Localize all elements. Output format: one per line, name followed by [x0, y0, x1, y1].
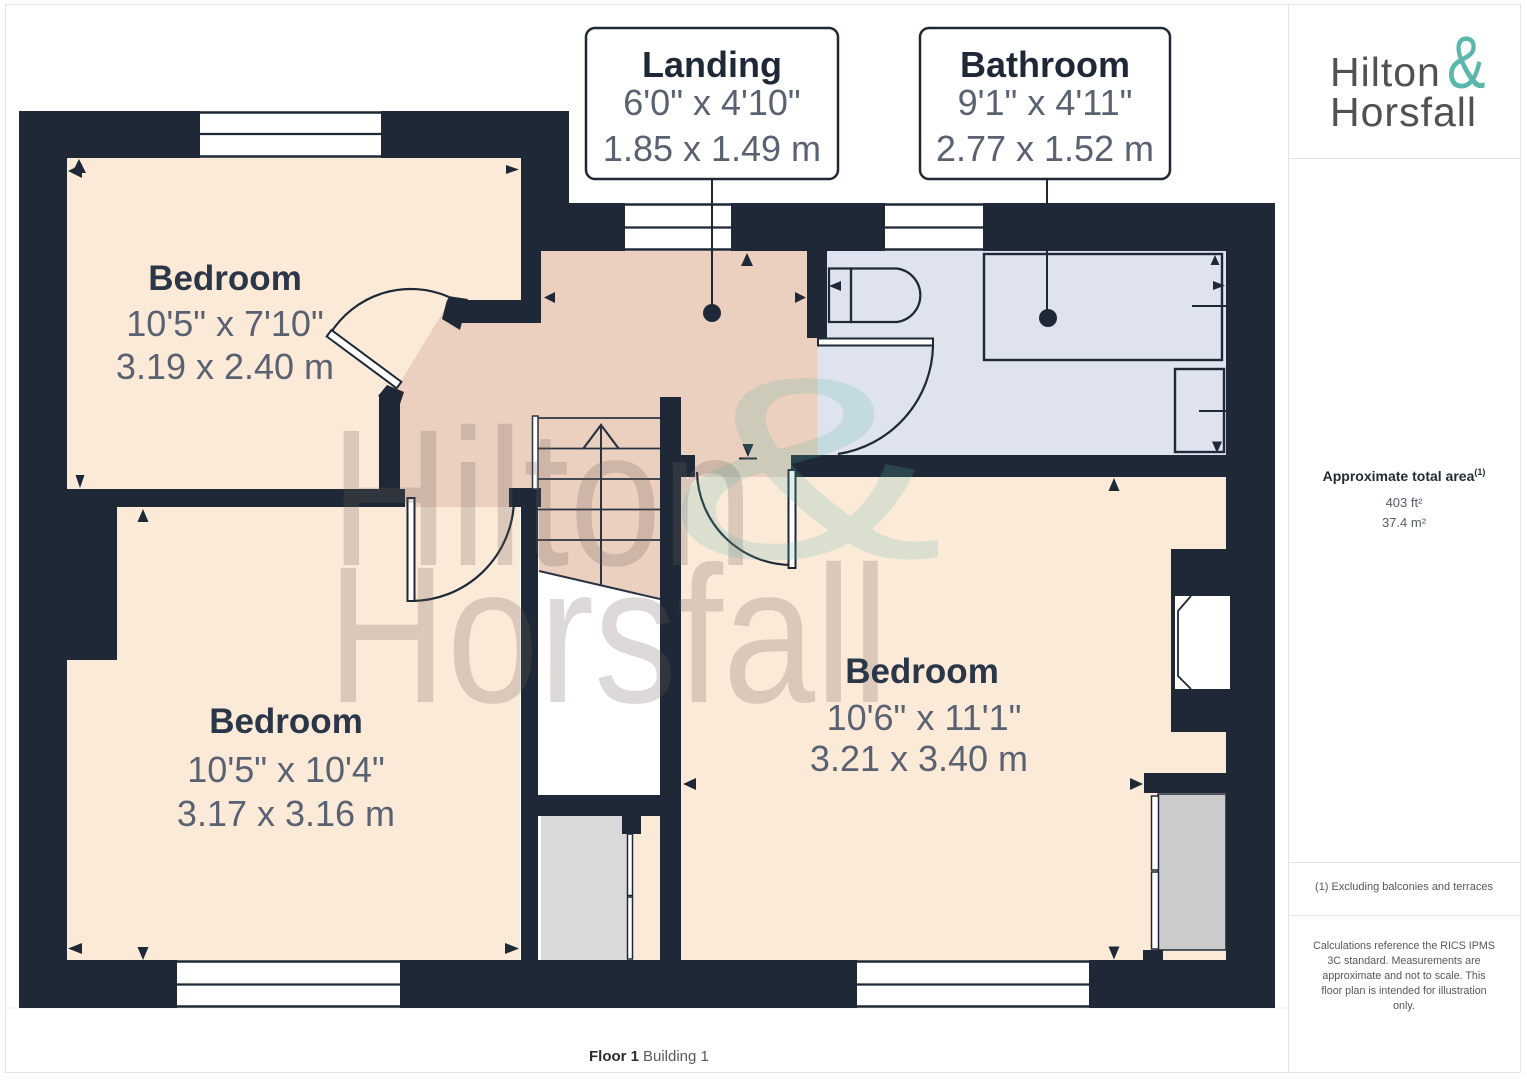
svg-text:37.4 m²: 37.4 m²: [1382, 515, 1427, 530]
svg-text:10'5" x 7'10": 10'5" x 7'10": [126, 303, 323, 344]
svg-text:Horsfall: Horsfall: [327, 526, 889, 744]
svg-text:1.85 x 1.49 m: 1.85 x 1.49 m: [603, 128, 821, 169]
svg-text:3.19 x 2.40 m: 3.19 x 2.40 m: [116, 346, 334, 387]
svg-text:10'5" x 10'4": 10'5" x 10'4": [187, 749, 384, 790]
svg-text:Bedroom: Bedroom: [148, 259, 302, 298]
svg-text:3C standard. Measurements are: 3C standard. Measurements are: [1327, 955, 1480, 967]
svg-text:Calculations reference the RIC: Calculations reference the RICS IPMS: [1313, 940, 1495, 952]
svg-text:only.: only.: [1393, 1000, 1415, 1012]
svg-text:6'0" x 4'10": 6'0" x 4'10": [623, 82, 800, 123]
svg-text:approximate and not to scale.: approximate and not to scale. This: [1322, 970, 1485, 982]
svg-text:2.77 x 1.52 m: 2.77 x 1.52 m: [936, 128, 1154, 169]
svg-text:floor plan is intended for ill: floor plan is intended for illustration: [1321, 985, 1486, 997]
svg-text:3.17 x 3.16 m: 3.17 x 3.16 m: [177, 793, 395, 834]
svg-text:Landing: Landing: [642, 44, 782, 85]
svg-text:Bathroom: Bathroom: [960, 44, 1130, 85]
svg-text:3.21 x 3.40 m: 3.21 x 3.40 m: [810, 738, 1028, 779]
svg-text:10'6" x 11'1": 10'6" x 11'1": [827, 697, 1022, 738]
svg-text:403 ft²: 403 ft²: [1386, 495, 1424, 510]
svg-text:Floor 1: Floor 1: [589, 1048, 639, 1065]
svg-text:Building 1: Building 1: [643, 1048, 709, 1065]
svg-text:Bedroom: Bedroom: [209, 702, 363, 741]
svg-text:Bedroom: Bedroom: [845, 652, 999, 691]
svg-text:Horsfall: Horsfall: [1330, 89, 1477, 135]
svg-text:(1) Excluding balconies and te: (1) Excluding balconies and terraces: [1315, 881, 1493, 893]
svg-text:Approximate total area(1): Approximate total area(1): [1323, 467, 1486, 484]
svg-text:9'1" x 4'11": 9'1" x 4'11": [958, 82, 1133, 123]
